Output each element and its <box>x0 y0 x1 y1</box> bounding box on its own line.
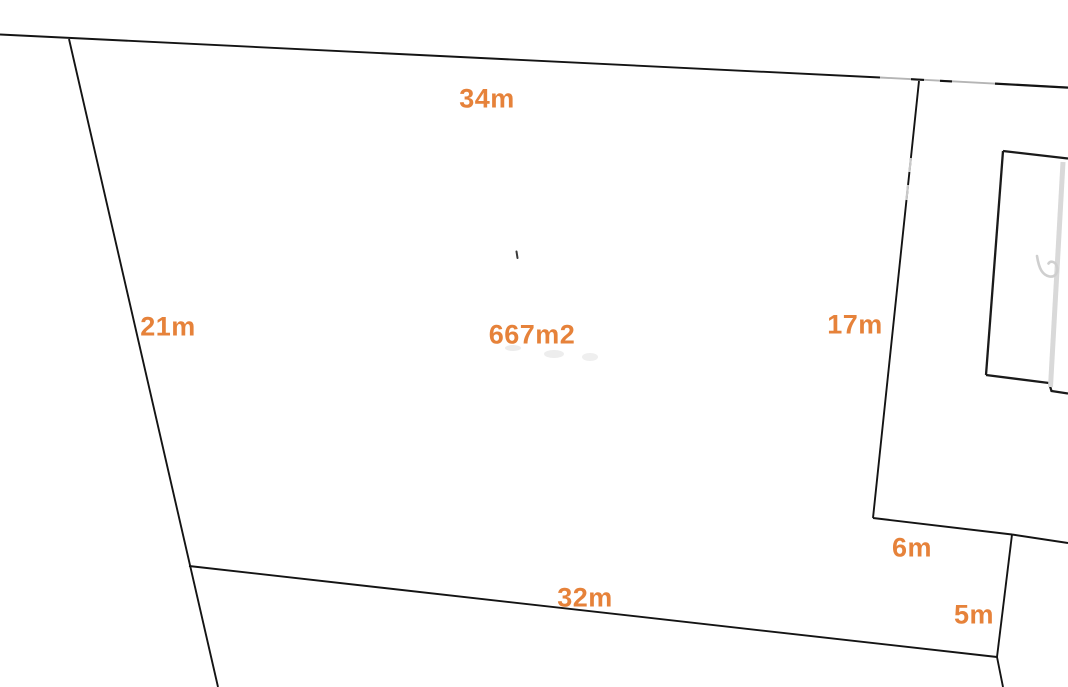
plot-boundary-right <box>873 81 919 518</box>
plot-boundary-right-gap <box>906 185 908 200</box>
plot-boundary-notch-lower <box>997 535 1012 658</box>
plot-sketch-canvas: 34m 21m 17m 32m 6m 5m 667m2 <box>0 0 1068 687</box>
plot-boundary-top-dash <box>995 84 1068 88</box>
plot-boundary-top-dash <box>940 81 952 82</box>
dimension-label-bottom: 32m <box>557 583 613 614</box>
dimension-label-notch-upper: 6m <box>892 533 932 564</box>
faint-smudge <box>544 350 564 358</box>
plot-boundary-top <box>0 35 880 78</box>
faint-smudge <box>582 353 598 361</box>
plot-boundary-right-gap <box>909 158 911 172</box>
building-outline-bottom <box>986 375 1068 394</box>
dimension-label-right: 17m <box>827 310 883 341</box>
dimension-label-top: 34m <box>459 84 515 115</box>
plot-boundary-top-dash <box>911 79 924 80</box>
boundary-extension-below <box>997 657 1003 687</box>
building-outline-top <box>1003 151 1068 159</box>
dimension-label-notch-lower: 5m <box>954 600 994 631</box>
building-outline-left <box>986 151 1003 375</box>
center-speck-mark <box>517 252 518 259</box>
plot-boundary-left <box>69 39 218 687</box>
plot-area-label: 667m2 <box>489 320 576 351</box>
dimension-label-left: 21m <box>140 312 196 343</box>
neighbour-boundary-extension <box>1012 535 1068 544</box>
